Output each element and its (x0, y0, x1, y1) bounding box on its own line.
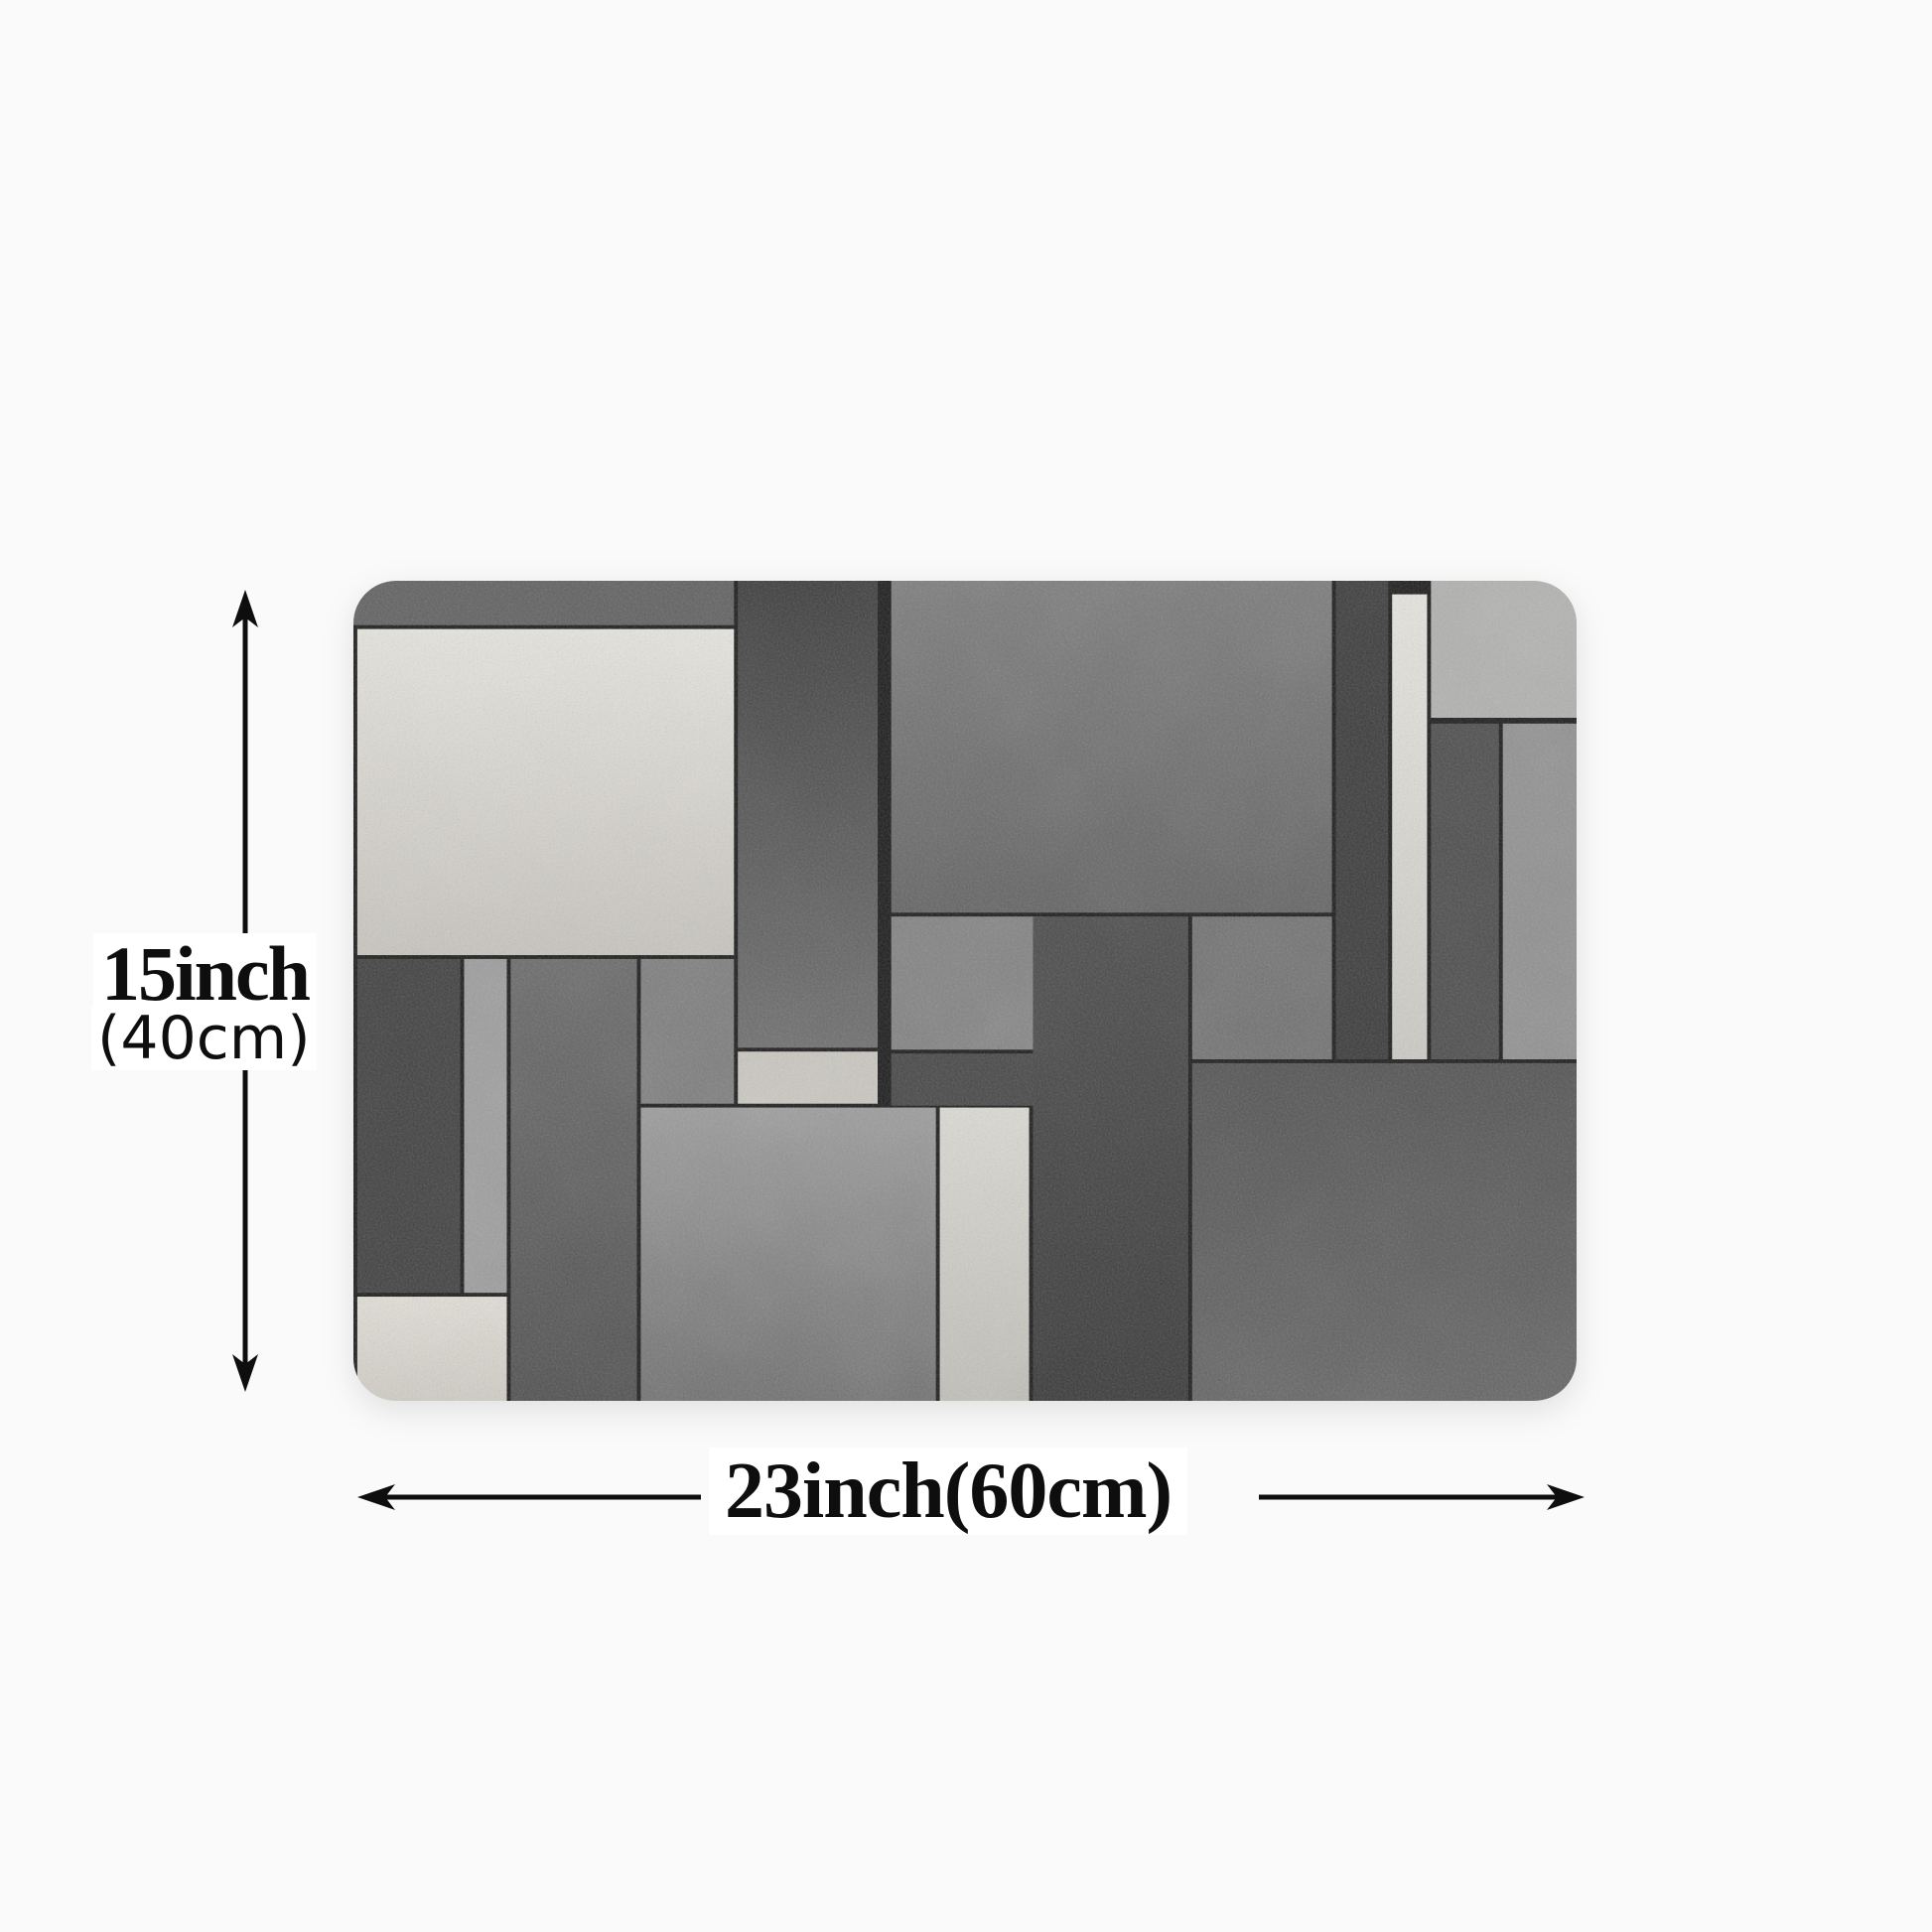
width-label: 23inch(60cm) (709, 1448, 1187, 1535)
height-label-inches: 15inch (93, 933, 317, 1015)
mat-block-pattern (353, 581, 1577, 1401)
doormat-image (353, 581, 1577, 1401)
width-dimension-arrow-right-icon (1255, 1477, 1587, 1517)
width-dimension-arrow-left-icon (355, 1477, 705, 1517)
product-dimension-diagram: 15inch (40cm) 23inch(60cm) (0, 0, 1932, 1932)
height-label-cm: (40cm) (91, 1007, 317, 1070)
